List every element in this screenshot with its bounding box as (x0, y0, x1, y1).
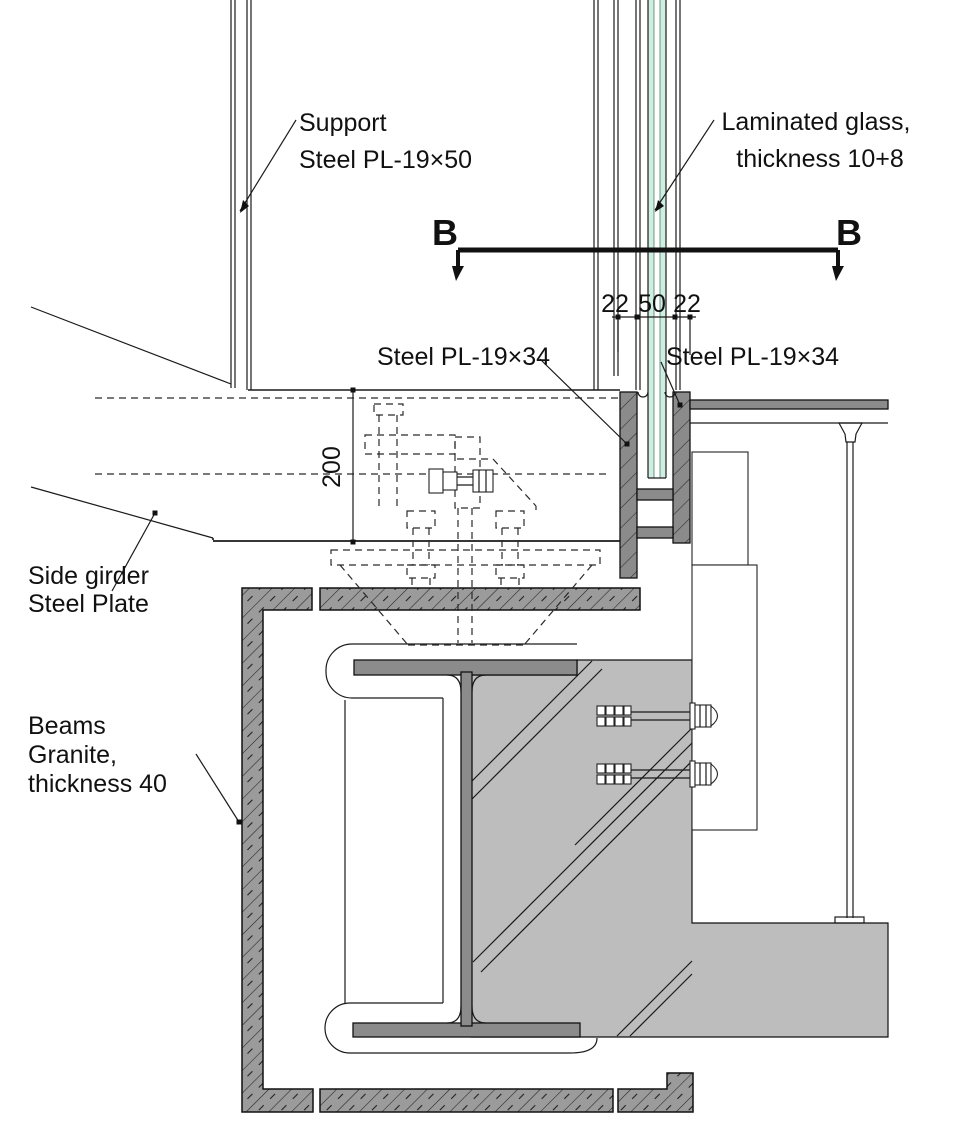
beam-fillet (447, 675, 461, 692)
beam-fillet (447, 1006, 461, 1023)
glazing-lines-top (594, 0, 680, 390)
dim-gap-right: 22 (673, 290, 701, 318)
shoe-spacer-top (637, 489, 673, 500)
plate-label-right: Steel PL-19×34 (666, 343, 839, 371)
plate-label-left: Steel PL-19×34 (377, 343, 550, 371)
section-marker-b-right: B (836, 212, 862, 253)
support-label-line1: Support (299, 109, 387, 137)
shoe-spacer-bottom (637, 527, 673, 538)
beams-label-line3: thickness 40 (28, 770, 167, 798)
side-girder-label-line2: Steel Plate (28, 590, 149, 618)
section-marker-b-left: B (432, 212, 458, 253)
beam-web (461, 672, 472, 1026)
shoe-plate-left (620, 392, 637, 578)
dim-glass-unit: 50 (638, 290, 666, 318)
support-column (231, 0, 251, 390)
beams-label-line1: Beams (28, 712, 106, 740)
granite-top-band (320, 588, 640, 610)
dimension-200: 200 (318, 388, 356, 545)
side-girder-label-line1: Side girder (28, 562, 149, 590)
concrete-mass (471, 660, 888, 1037)
glass-label-line2: thickness 10+8 (736, 145, 903, 173)
granite-bottom-right-piece (618, 1073, 693, 1112)
section-line-bb: B B (432, 212, 862, 281)
granite-left-c-piece (242, 588, 313, 1112)
glass-label-line1: Laminated glass, (721, 108, 910, 136)
transom-band (690, 400, 888, 409)
right-framing (690, 400, 888, 923)
gasket-arc-left (638, 392, 648, 397)
hanger-rod (835, 423, 864, 923)
dim-gap-left: 22 (601, 290, 629, 318)
bracket-plate-upper (692, 452, 748, 565)
detail-drawing-canvas: B B 22 50 22 200 Support Steel (0, 0, 960, 1146)
centre-bolt (429, 469, 493, 493)
structural-detail-svg: B B 22 50 22 200 Support Steel (0, 0, 960, 1146)
beams-label-line2: Granite, (28, 741, 117, 769)
shoe-plate-right (673, 392, 690, 543)
laminated-glass (648, 0, 666, 478)
dim-girder-height: 200 (318, 446, 346, 488)
bracket-plate-lower (692, 565, 757, 830)
granite-bottom-band (320, 1089, 613, 1112)
support-label-line2: Steel PL-19×50 (299, 146, 472, 174)
